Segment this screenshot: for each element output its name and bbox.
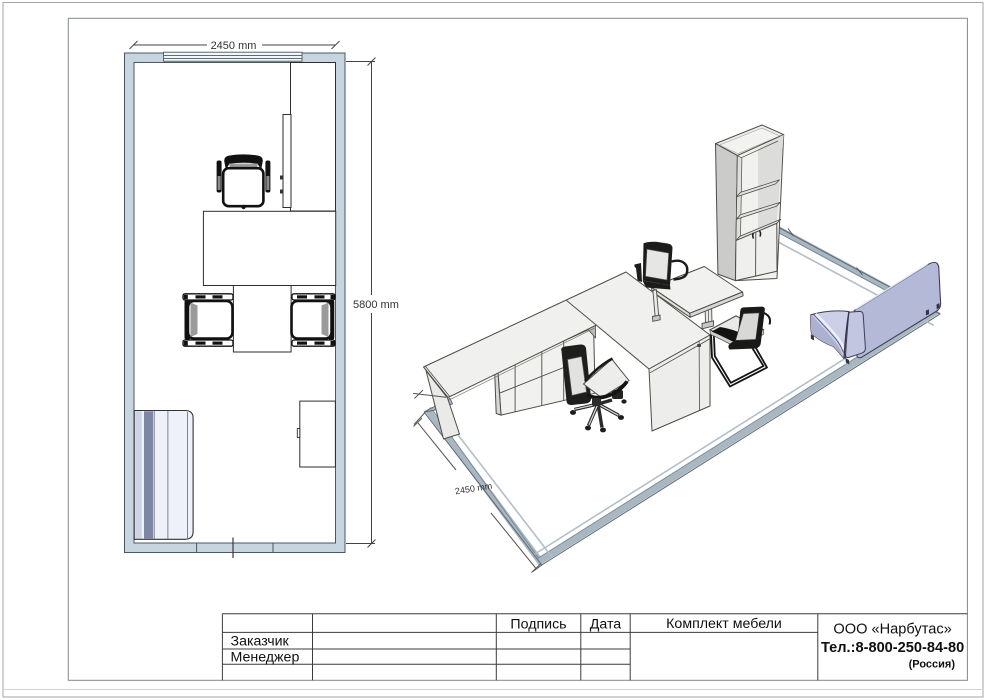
svg-text:(Россия): (Россия) — [909, 659, 956, 671]
svg-text:Подпись: Подпись — [510, 617, 566, 633]
svg-text:Дата: Дата — [590, 617, 622, 633]
svg-text:Комплект мебели: Комплект мебели — [666, 616, 782, 632]
svg-text:Заказчик: Заказчик — [231, 634, 290, 650]
svg-text:2450 mm: 2450 mm — [211, 40, 257, 52]
svg-text:5800 mm: 5800 mm — [353, 299, 399, 311]
svg-text:Менеджер: Менеджер — [231, 650, 300, 666]
svg-text:ООО «Нарбутас»: ООО «Нарбутас» — [833, 622, 951, 638]
svg-text:Тел.:8-800-250-84-80: Тел.:8-800-250-84-80 — [821, 640, 964, 656]
